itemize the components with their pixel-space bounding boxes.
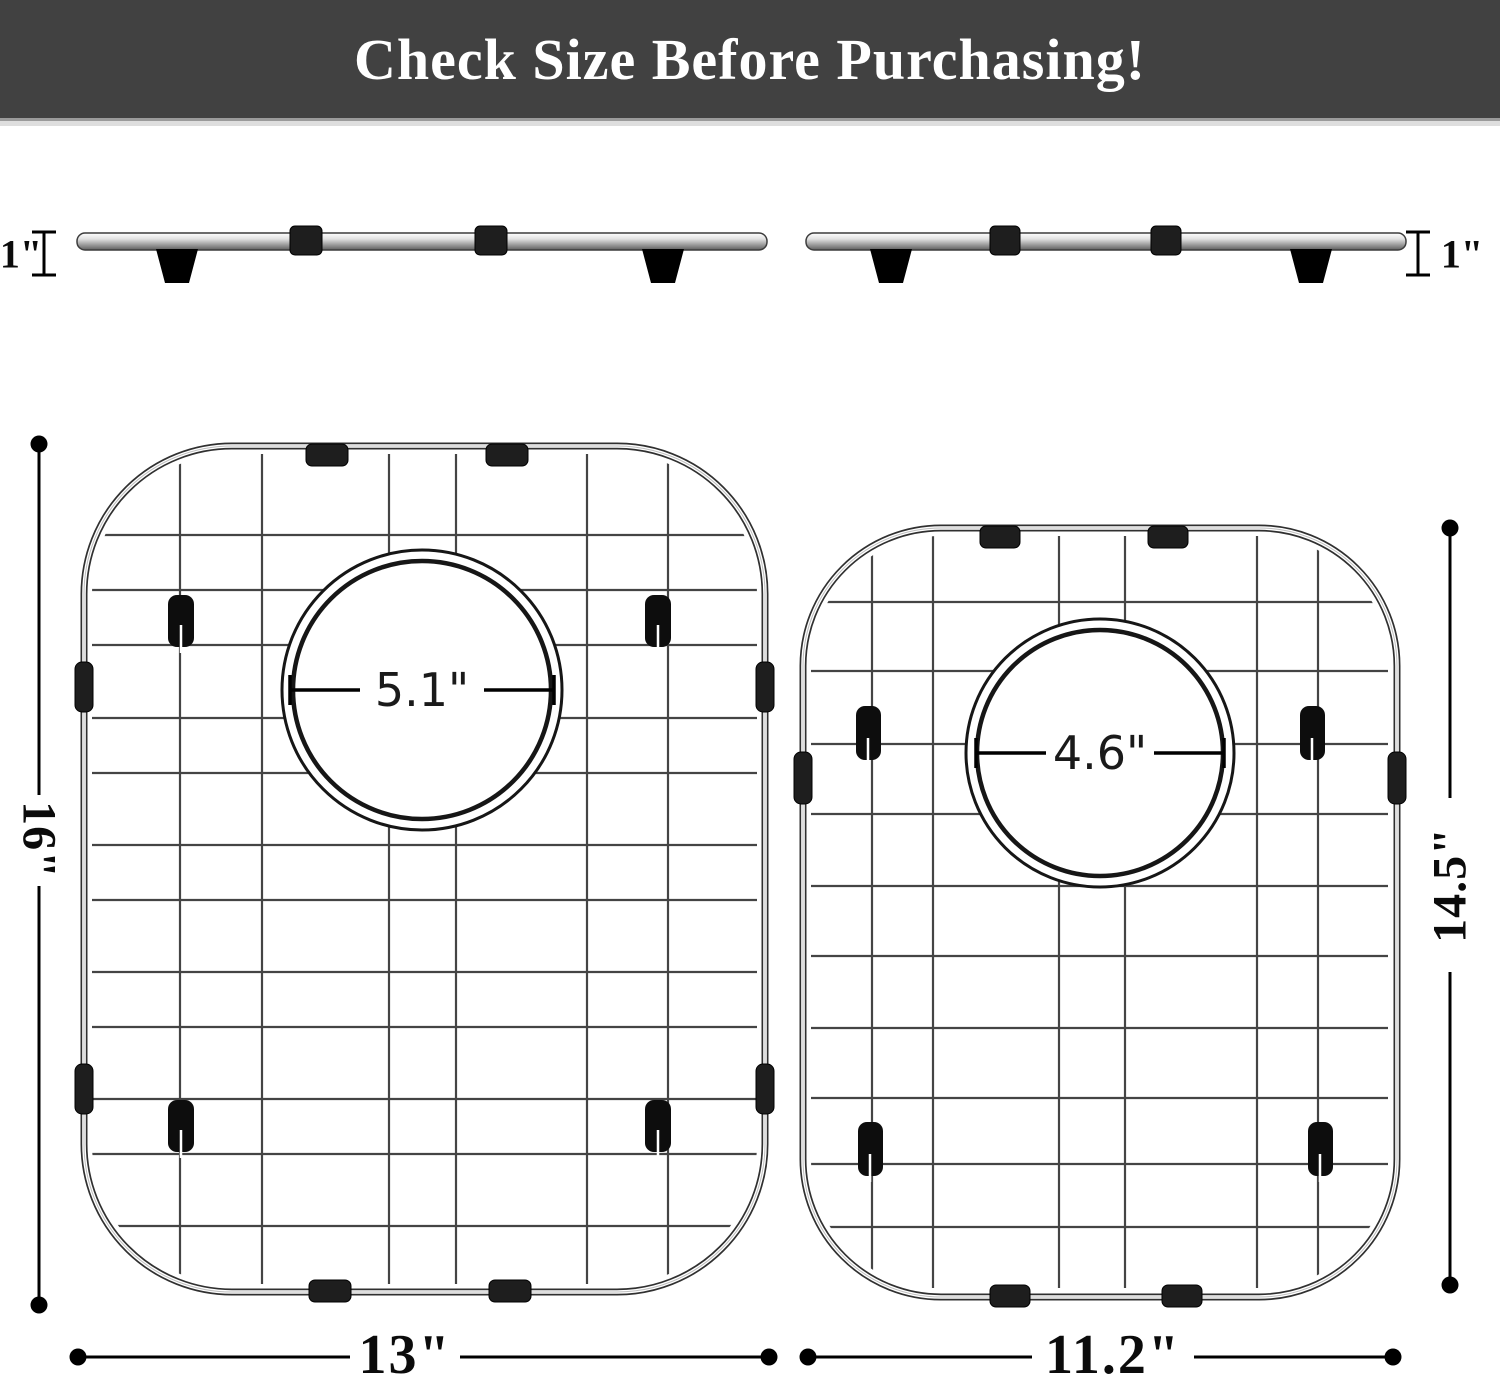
left-grid-height-label: 16" bbox=[13, 801, 66, 879]
left-grid-width-label: 13" bbox=[358, 1324, 451, 1377]
product-diagram: Check Size Before Purchasing! 1" bbox=[0, 0, 1500, 1377]
dimension-right-height: 14.5" bbox=[1424, 520, 1477, 1294]
right-grid-width-label: 11.2" bbox=[1045, 1324, 1181, 1377]
sink-grid-left: 5.1" bbox=[75, 444, 774, 1302]
right-grid-height-label: 14.5" bbox=[1424, 827, 1477, 943]
dimension-right-width: 11.2" bbox=[800, 1324, 1402, 1377]
dimension-left-height: 16" bbox=[13, 436, 66, 1314]
height-bracket-right: 1" bbox=[1406, 232, 1483, 277]
side-view-right: 1" bbox=[806, 226, 1483, 283]
diagram-canvas: 1" 1" bbox=[0, 0, 1500, 1377]
dimension-left-width: 13" bbox=[70, 1324, 778, 1377]
height-bracket-left: 1" bbox=[0, 232, 56, 277]
side-height-label-left: 1" bbox=[0, 232, 42, 277]
right-hole-diameter-label: 4.6" bbox=[1053, 726, 1147, 780]
profile-feet-right bbox=[870, 249, 1332, 283]
profile-feet-left bbox=[156, 249, 684, 283]
side-view-left: 1" bbox=[0, 226, 767, 283]
sink-grid-right: 4.6" bbox=[794, 526, 1406, 1307]
left-hole-diameter-label: 5.1" bbox=[375, 663, 469, 717]
grid-profile-left bbox=[77, 233, 767, 250]
side-height-label-right: 1" bbox=[1441, 232, 1483, 277]
grid-profile-right bbox=[806, 233, 1406, 250]
